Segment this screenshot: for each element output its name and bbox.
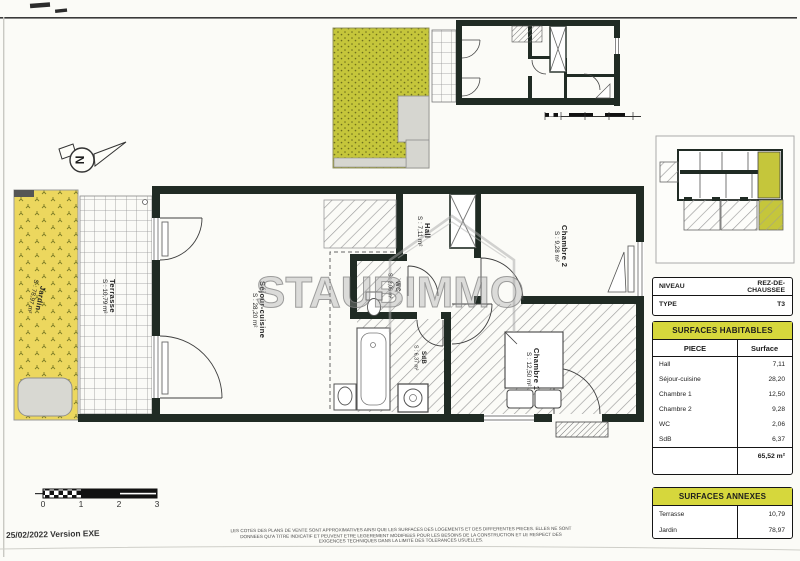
date-version: 25/02/2022 Version EXE	[6, 528, 100, 540]
column-divider	[737, 339, 738, 474]
upper-scale-bar	[545, 112, 641, 120]
neighbor-unit-plan	[333, 20, 641, 168]
closet-icon	[450, 194, 476, 248]
north-arrow-icon	[59, 142, 126, 172]
scale-label-1: 1	[75, 499, 87, 509]
scale-bar	[35, 489, 157, 498]
disclaimer-text: LES COTES DES PLANS DE VENTE SONT APPROX…	[158, 525, 644, 545]
north-label: N	[72, 156, 86, 165]
room-label-terrasse: Terrasse S : 10,79 m²	[100, 250, 117, 342]
table-row: Hall 7,11	[653, 357, 792, 372]
watermark-text: STAUBIMMO	[256, 268, 524, 318]
table-header-row: PIECE Surface	[653, 340, 792, 357]
doormat-icon	[556, 422, 608, 437]
table-row: SdB 6,37	[653, 432, 792, 447]
surfaces-habitables-table: SURFACES HABITABLES PIECE Surface Hall 7…	[652, 321, 793, 475]
room-label-sdb: SdB S : 6,37 m²	[412, 330, 426, 386]
window-leaf-icon	[608, 252, 626, 292]
scale-label-2: 2	[113, 499, 125, 509]
table-row: NIVEAU REZ-DE-CHAUSSEE	[653, 278, 792, 296]
table-row: Chambre 2 9,28	[653, 402, 792, 417]
table-row: Chambre 1 12,50	[653, 387, 792, 402]
table-row: Séjour-cuisine 28,20	[653, 372, 792, 387]
surfaces-annexes-table: SURFACES ANNEXES Terrasse 10,79 Jardin 7…	[652, 487, 793, 539]
table-total-row: 65,52 m²	[653, 447, 792, 464]
table-row: Jardin 78,97	[653, 522, 792, 538]
key-plan	[656, 136, 794, 263]
room-label-chambre2: Chambre 2 S : 9,28 m²	[552, 205, 569, 287]
scale-label-0: 0	[37, 499, 49, 509]
table-title: SURFACES HABITABLES	[653, 322, 792, 340]
washing-machine-icon	[398, 384, 428, 412]
table-title: SURFACES ANNEXES	[653, 488, 792, 506]
table-row: WC 2,06	[653, 417, 792, 432]
table-row: Terrasse 10,79	[653, 506, 792, 522]
jardin-area	[14, 190, 78, 420]
room-label-chambre1: Chambre 1 S : 12,50 m²	[524, 328, 541, 410]
bathtub-icon	[357, 328, 390, 410]
table-row: TYPE T3	[653, 296, 792, 313]
floor-plan-page: N Jardin S : 78,97 m² Terrasse S : 10,79…	[0, 0, 800, 561]
info-table: NIVEAU REZ-DE-CHAUSSEE TYPE T3	[652, 277, 793, 316]
kitchen-tiling	[324, 200, 396, 248]
room-label-hall: Hall S : 7,11 m²	[415, 197, 432, 265]
scale-label-3: 3	[151, 499, 163, 509]
column-divider	[737, 505, 738, 538]
